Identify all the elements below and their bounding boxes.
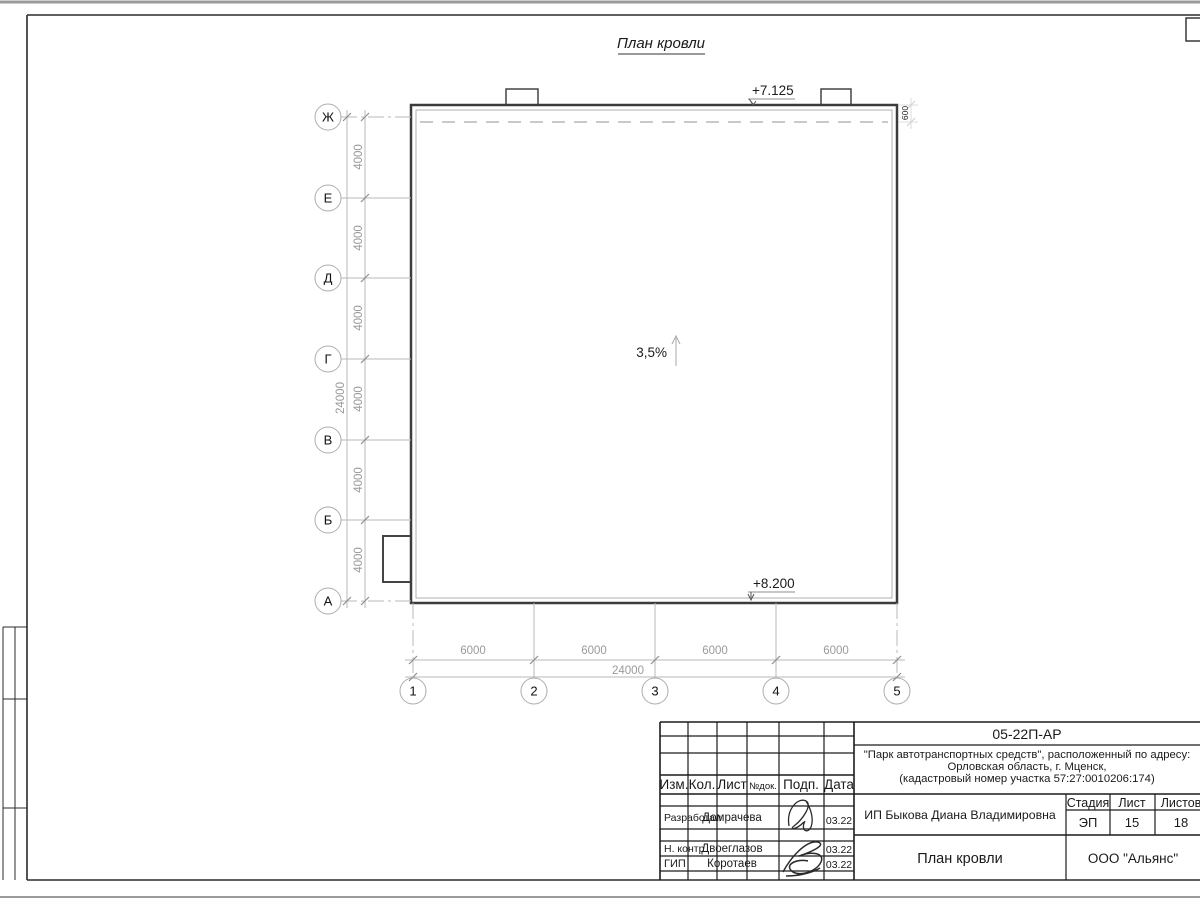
- sheet-label: Лист: [1118, 796, 1145, 810]
- project-line: "Парк автотранспортных средств", располо…: [864, 749, 1190, 761]
- client-name: ИП Быкова Диана Владимировна: [864, 808, 1056, 822]
- format-box: [1186, 18, 1200, 41]
- dim-value: 6000: [702, 645, 728, 657]
- axis-label: 5: [893, 684, 900, 699]
- dim-value: 4000: [353, 144, 365, 170]
- parapet-offset-dim: 600: [899, 98, 918, 129]
- dim-total: 24000: [335, 382, 347, 414]
- roof-vent-1: [506, 89, 538, 105]
- axis-label: 4: [772, 684, 779, 699]
- col-header: Подп.: [783, 777, 819, 792]
- row-date: 03.22: [826, 859, 852, 871]
- row-axis-bubbles: Ж Е Д Г В Б А: [315, 104, 341, 614]
- dim-total: 24000: [612, 665, 644, 677]
- project-line: Орловская область, г. Мценск,: [947, 761, 1106, 773]
- company-name: ООО "Альянс": [1088, 851, 1178, 866]
- page-title: План кровли: [617, 35, 706, 52]
- axis-label: 3: [651, 684, 658, 699]
- stage-value: ЭП: [1079, 815, 1098, 830]
- doc-number: 05-22П-АР: [992, 726, 1061, 742]
- axis-label: Е: [324, 191, 333, 206]
- sheets-value: 18: [1174, 815, 1188, 830]
- row-role: ГИП: [664, 858, 686, 870]
- axis-label: 1: [409, 684, 416, 699]
- drawing-sheet: План кровли Ж Е Д Г В Б А 1: [0, 0, 1200, 900]
- dim-value: 4000: [353, 305, 365, 331]
- col-header: №док.: [749, 781, 777, 792]
- sheet-title: План кровли: [917, 851, 1002, 867]
- row-name: Коротаев: [707, 858, 757, 870]
- sheets-label: Листов: [1161, 796, 1200, 810]
- col-header: Изм.: [660, 777, 689, 792]
- axis-label: А: [324, 594, 333, 609]
- side-stamp: [3, 627, 27, 880]
- roof-vent-2: [821, 89, 851, 105]
- dim-value: 600: [900, 106, 910, 120]
- axis-label: Б: [324, 513, 333, 528]
- dim-value: 6000: [460, 645, 486, 657]
- sheet-value: 15: [1125, 815, 1139, 830]
- axis-label: Г: [324, 352, 331, 367]
- elevation-top: +7.125: [748, 83, 795, 105]
- axis-label: Ж: [322, 110, 334, 125]
- dim-value: 4000: [353, 547, 365, 573]
- project-line: (кадастровый номер участка 57:27:0010206…: [899, 773, 1155, 785]
- roof-canopy: [383, 536, 412, 582]
- elevation-value: +8.200: [753, 576, 795, 591]
- col-axes: [413, 603, 897, 678]
- dim-value: 6000: [581, 645, 607, 657]
- axis-label: В: [324, 433, 333, 448]
- signature-domracheva: [789, 800, 813, 831]
- elevation-value: +7.125: [752, 83, 794, 98]
- drawing-canvas: План кровли Ж Е Д Г В Б А 1: [0, 0, 1200, 900]
- row-axes: [341, 117, 411, 601]
- col-axis-bubbles: 1 2 3 4 5: [400, 678, 910, 704]
- drawing-title: План кровли: [617, 35, 706, 54]
- row-name: Домрачева: [702, 812, 762, 824]
- signatures: [783, 800, 822, 876]
- col-header: Кол.: [689, 777, 716, 792]
- row-name: Двоеглазов: [701, 843, 762, 855]
- row-date: 03.22: [826, 844, 852, 856]
- col-header: Дата: [824, 777, 854, 792]
- slope-label: 3,5%: [636, 345, 667, 360]
- dim-value: 4000: [353, 386, 365, 412]
- dim-value: 4000: [353, 467, 365, 493]
- titleblock-text: Изм. Кол. Лист №док. Подп. Дата Разработ…: [660, 726, 1200, 871]
- axis-label: Д: [324, 271, 333, 286]
- stage-label: Стадия: [1067, 796, 1110, 810]
- dim-value: 6000: [823, 645, 849, 657]
- dim-value: 4000: [353, 225, 365, 251]
- row-date: 03.22: [826, 815, 852, 827]
- col-header: Лист: [717, 777, 746, 792]
- axis-label: 2: [530, 684, 537, 699]
